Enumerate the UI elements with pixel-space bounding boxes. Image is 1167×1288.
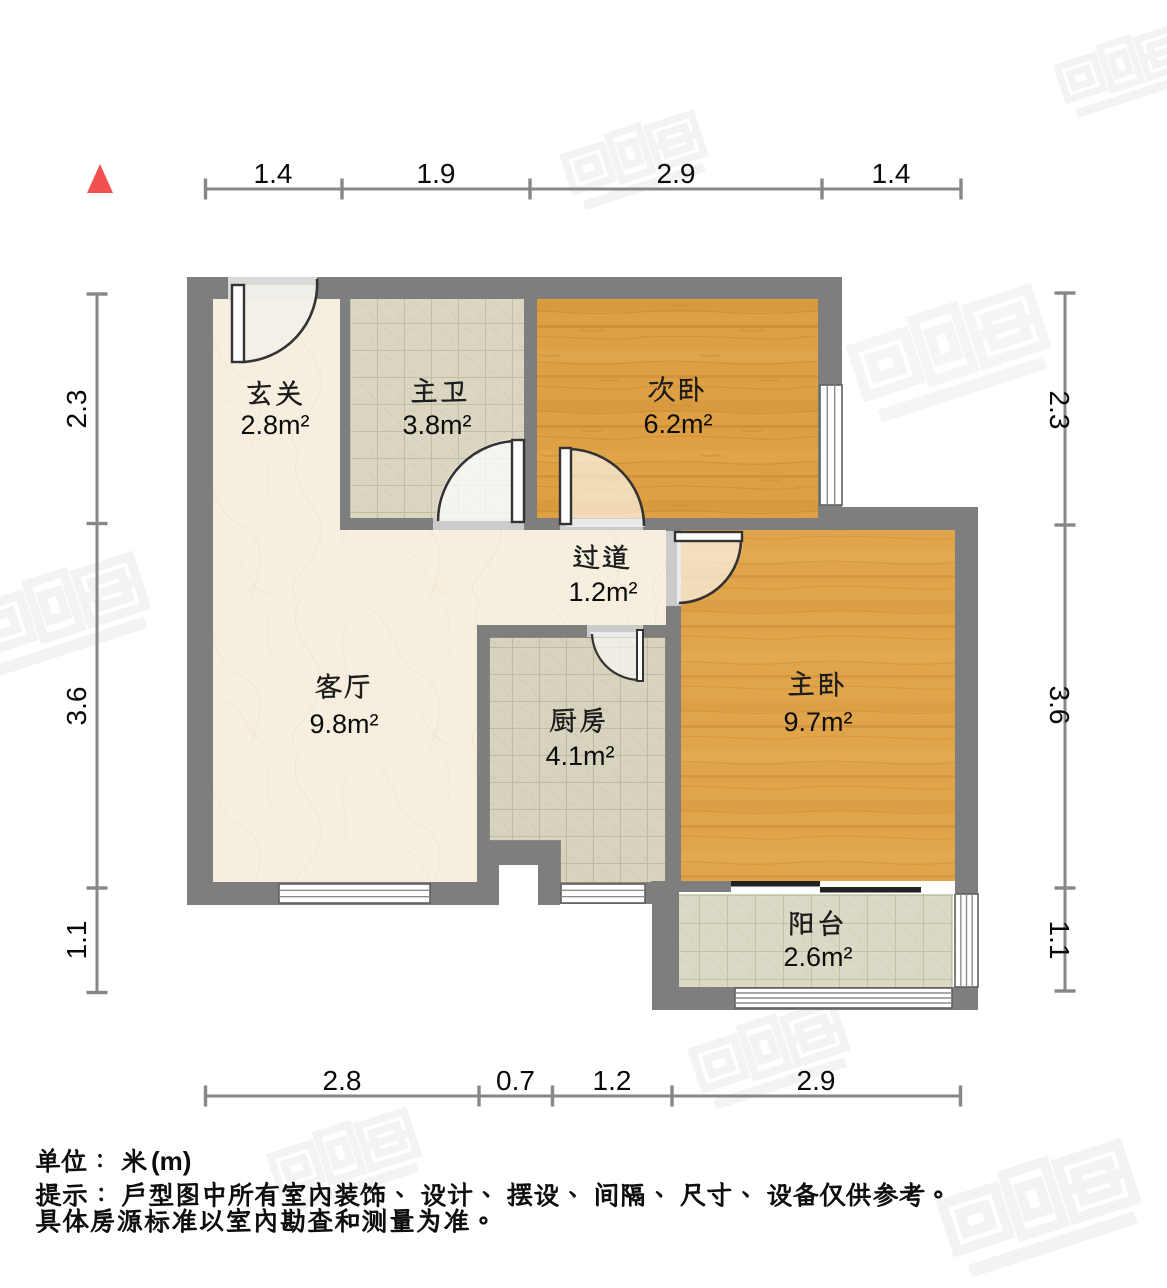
svg-text:0.7: 0.7	[496, 1065, 535, 1096]
svg-text:2.8: 2.8	[323, 1065, 362, 1096]
svg-text:9.8m²: 9.8m²	[309, 709, 378, 739]
svg-text:2.3: 2.3	[61, 390, 92, 429]
svg-text:1.1: 1.1	[61, 921, 92, 960]
svg-text:2.3: 2.3	[1044, 391, 1075, 430]
svg-text:2.8m²: 2.8m²	[240, 410, 309, 440]
svg-text:3.6: 3.6	[61, 687, 92, 726]
svg-text:1.2: 1.2	[593, 1065, 632, 1096]
svg-text:(m): (m)	[151, 1146, 191, 1176]
svg-text:2.6m²: 2.6m²	[783, 942, 852, 972]
svg-text:1.4: 1.4	[254, 158, 293, 189]
svg-text:6.2m²: 6.2m²	[643, 409, 712, 439]
svg-text:1.2m²: 1.2m²	[568, 577, 637, 607]
svg-text:1.1: 1.1	[1044, 921, 1075, 960]
svg-text:3.8m²: 3.8m²	[402, 410, 471, 440]
svg-text:1.4: 1.4	[872, 158, 911, 189]
svg-text:9.7m²: 9.7m²	[783, 707, 852, 737]
svg-text:3.6: 3.6	[1044, 686, 1075, 725]
svg-text:4.1m²: 4.1m²	[545, 741, 614, 771]
svg-text:1.9: 1.9	[417, 158, 456, 189]
svg-text:2.9: 2.9	[657, 158, 696, 189]
svg-text:2.9: 2.9	[797, 1065, 836, 1096]
